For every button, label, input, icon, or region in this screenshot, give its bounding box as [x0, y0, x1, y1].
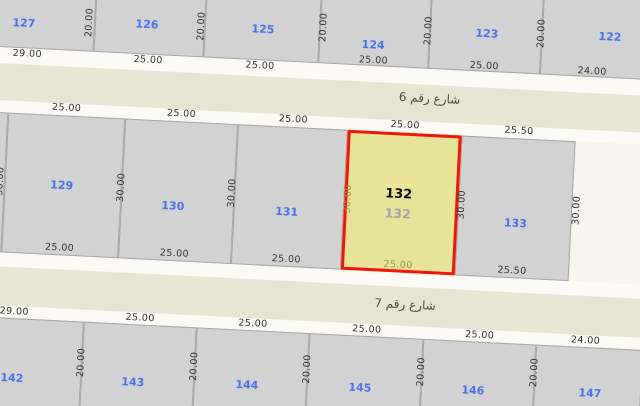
parcel-number-129: 129 [50, 179, 73, 191]
parcel-number-142: 142 [0, 372, 23, 384]
parcel-number-143: 143 [121, 376, 144, 388]
side-dimension-label: 20.00 [76, 348, 87, 378]
dimension-label: 25.00 [359, 55, 389, 66]
dimension-label: 25.00 [383, 260, 413, 271]
parcel-133[interactable] [455, 136, 576, 282]
dimension-label: 25.50 [497, 266, 527, 277]
dimension-label: 25.00 [160, 248, 190, 259]
parcel-number-125: 125 [251, 23, 274, 35]
parcel-132-selected[interactable] [341, 130, 462, 276]
parcel-number-124: 124 [361, 39, 384, 51]
dimension-label: 25.00 [278, 114, 308, 125]
dimension-label: 24.00 [571, 335, 601, 346]
side-dimension-label: 30.00 [227, 178, 238, 208]
parcel-130[interactable] [118, 118, 238, 264]
side-dimension-label: 20.00 [423, 16, 434, 46]
parcel-number-127: 127 [12, 17, 35, 29]
parcel-number-146: 146 [461, 384, 484, 396]
selected-parcel-number-primary: 132 [385, 187, 413, 201]
parcel-142[interactable] [0, 315, 84, 406]
side-dimension-label: 30.00 [343, 184, 354, 214]
dimension-label: 25.00 [133, 55, 163, 66]
dimension-label: 25.00 [465, 330, 495, 341]
dimension-label: 29.00 [12, 49, 42, 60]
parcel-number-131: 131 [275, 206, 298, 218]
dimension-label: 25.00 [271, 254, 301, 265]
parcel-143[interactable] [79, 322, 197, 406]
dimension-label: 25.00 [352, 324, 382, 335]
side-dimension-label: 20.00 [416, 357, 427, 387]
side-dimension-label: 30.00 [116, 173, 127, 203]
dimension-label: 25.00 [167, 109, 197, 120]
parcel-number-145: 145 [348, 382, 371, 394]
parcel-number-147: 147 [578, 387, 601, 399]
side-dimension-label: 20.00 [84, 8, 95, 38]
dimension-label: 25.00 [390, 120, 420, 131]
parcel-number-122: 122 [598, 31, 621, 43]
dimension-label: 24.00 [577, 66, 607, 77]
parcel-131[interactable] [231, 124, 348, 269]
dimension-label: 25.00 [125, 313, 155, 324]
side-dimension-label: 20.00 [196, 11, 207, 41]
dimension-label: 25.00 [45, 243, 75, 254]
side-dimension-label: 20.00 [536, 19, 547, 49]
parcel-number-130: 130 [161, 200, 184, 212]
cadastral-map-view: شارع رقم 6 شارع رقم 7 12729.0012625.0012… [0, 0, 640, 406]
dimension-label: 25.00 [238, 318, 268, 329]
parcel-145[interactable] [305, 333, 424, 406]
parcel-number-126: 126 [135, 18, 158, 30]
parcel-number-123: 123 [475, 28, 498, 40]
side-dimension-label: 20.00 [529, 358, 540, 388]
dimension-label: 25.50 [504, 126, 534, 137]
parcel-number-144: 144 [235, 379, 258, 391]
dimension-label: 25.00 [52, 103, 82, 114]
dimension-label: 29.00 [0, 306, 29, 317]
parcel-144[interactable] [192, 327, 310, 406]
dimension-label: 25.00 [245, 61, 275, 72]
parcel-number-133: 133 [504, 217, 527, 229]
side-dimension-label: 20.00 [189, 351, 200, 381]
selected-parcel-number-secondary: 132 [384, 206, 411, 220]
side-dimension-label: 30.00 [457, 190, 468, 220]
dimension-label: 25.00 [469, 61, 499, 72]
side-dimension-label: 20.00 [302, 354, 313, 384]
side-dimension-label: 20.00 [318, 13, 329, 43]
side-dimension-label: 30.00 [571, 196, 582, 226]
